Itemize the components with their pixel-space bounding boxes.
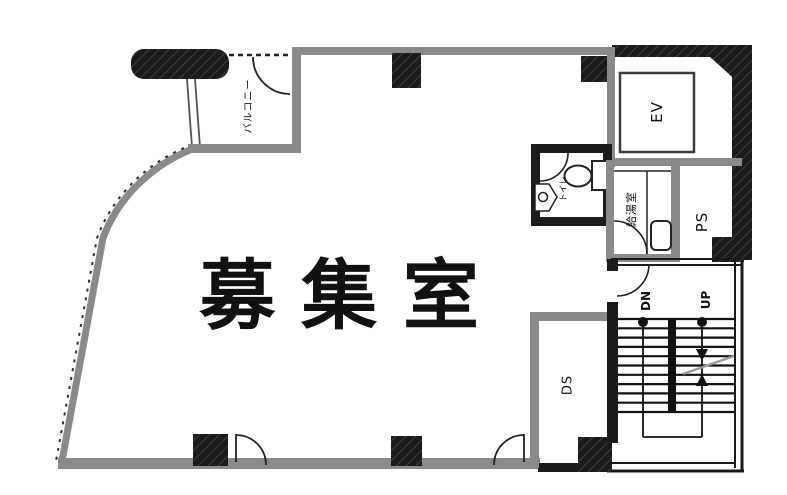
kitchenette-wall-left bbox=[606, 160, 614, 262]
toilet-wall-top bbox=[531, 144, 612, 153]
kitchenette-wall-right bbox=[671, 160, 680, 262]
balcony-right-wall bbox=[292, 47, 301, 153]
balcony-left-wall-a bbox=[187, 79, 192, 147]
balcony bbox=[131, 47, 301, 153]
stairs-up-label: UP bbox=[699, 291, 713, 310]
main-room-label: 募集室 bbox=[199, 234, 505, 344]
ds-wall-top bbox=[530, 312, 610, 321]
stairs-down-label: DN bbox=[639, 291, 653, 311]
kitchenette bbox=[606, 160, 680, 262]
ds-corner-block bbox=[578, 437, 612, 472]
floor-plan: 募集室 バルコニー EV PS DS 給湯室 トイレ DN UP bbox=[0, 0, 787, 495]
toilet-wall-bottom bbox=[531, 217, 612, 226]
duct-shaft-label: DS bbox=[561, 375, 576, 395]
wall-pillar-top-right bbox=[581, 56, 607, 82]
stair-line-dot-dn bbox=[638, 317, 648, 327]
stair-line-dot-up bbox=[697, 317, 707, 327]
staircase bbox=[618, 317, 734, 437]
toilet-room bbox=[531, 144, 612, 226]
kitchenette-label: 給湯室 bbox=[623, 191, 639, 227]
toilet-tank bbox=[592, 161, 608, 190]
balcony-left-wall-b bbox=[195, 79, 200, 147]
kitchenette-sink bbox=[651, 221, 671, 250]
ds-wall-left bbox=[530, 312, 539, 468]
balcony-black-bar bbox=[131, 49, 229, 79]
curved-wall-dashes bbox=[56, 148, 184, 461]
stair-arrow-down bbox=[696, 349, 708, 361]
balcony-door-arc bbox=[253, 57, 290, 94]
balcony-bottom-wall bbox=[188, 144, 301, 153]
wall-pillar-bottom-mid bbox=[391, 436, 422, 466]
bottom-wall-black bbox=[538, 463, 582, 472]
curved-wall bbox=[62, 150, 190, 461]
stair-hall-left-wall bbox=[607, 302, 618, 443]
top-wall-gray bbox=[292, 47, 615, 55]
pipe-shaft-label: PS bbox=[693, 212, 711, 233]
toilet-label: トイレ bbox=[557, 176, 569, 202]
right-wall-black bbox=[732, 55, 752, 260]
stair-hall-wall-stub bbox=[607, 259, 618, 271]
basin-bowl bbox=[539, 193, 548, 202]
elevator-label: EV bbox=[648, 101, 666, 123]
bottom-wall-gray bbox=[58, 458, 540, 469]
wall-pillar-bottom-left bbox=[193, 434, 228, 466]
stair-center-divider bbox=[668, 318, 676, 413]
balcony-label: バルコニー bbox=[240, 79, 255, 134]
wall-pillar-top-mid bbox=[392, 53, 421, 88]
